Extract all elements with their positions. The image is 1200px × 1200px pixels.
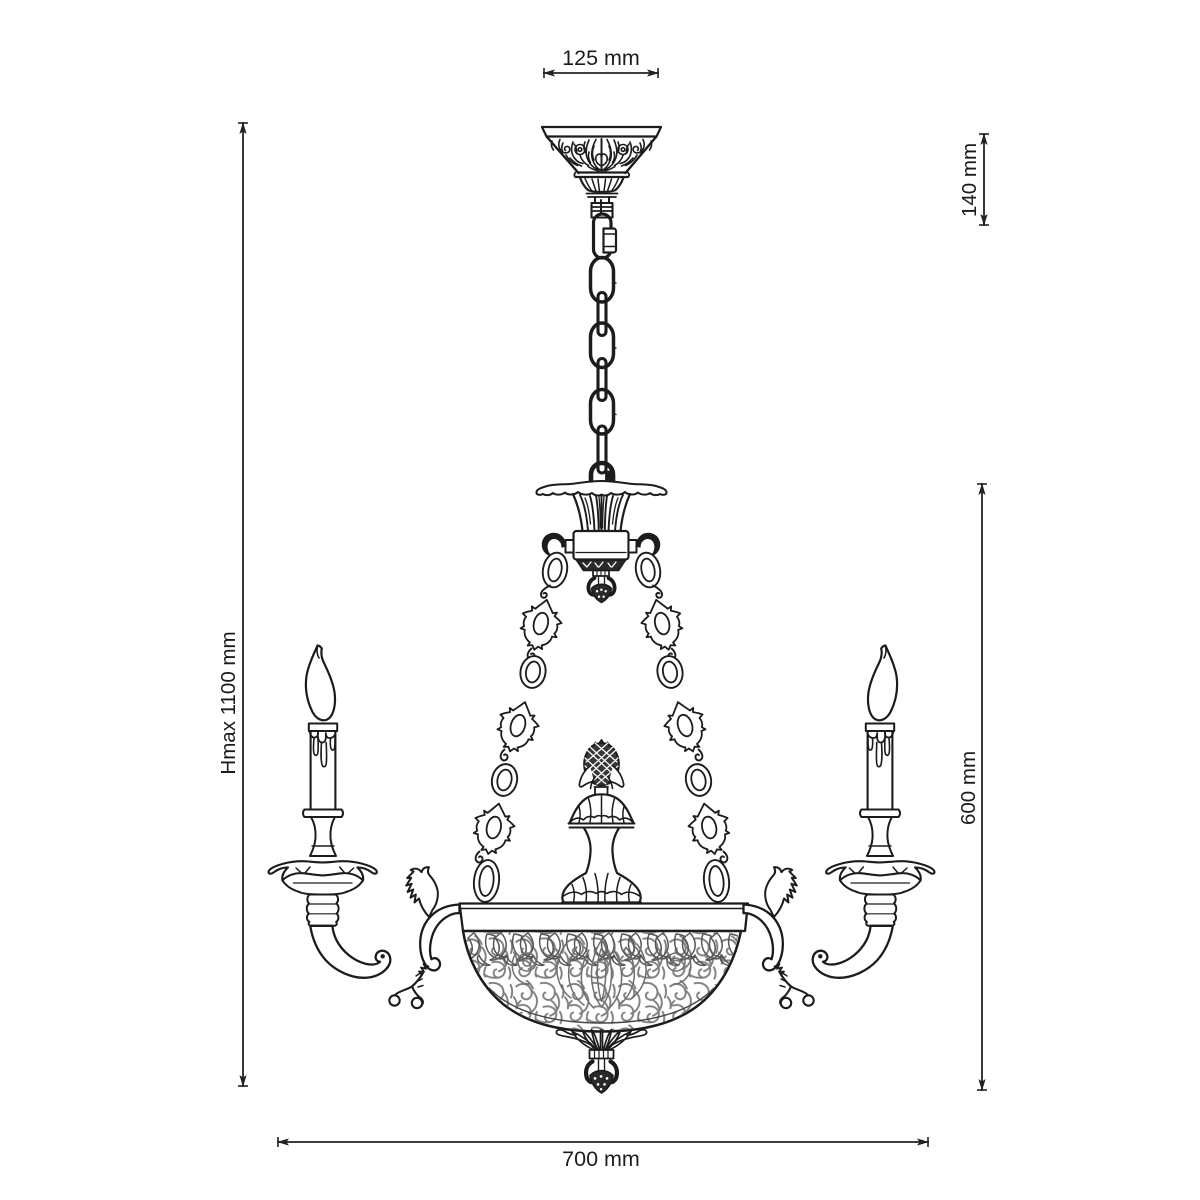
svg-text:125 mm: 125 mm	[562, 46, 640, 70]
svg-text:700 mm: 700 mm	[562, 1147, 640, 1171]
svg-text:Hmax 1100 mm: Hmax 1100 mm	[217, 631, 240, 774]
svg-text:600 mm: 600 mm	[957, 751, 980, 825]
svg-text:140 mm: 140 mm	[958, 143, 981, 217]
